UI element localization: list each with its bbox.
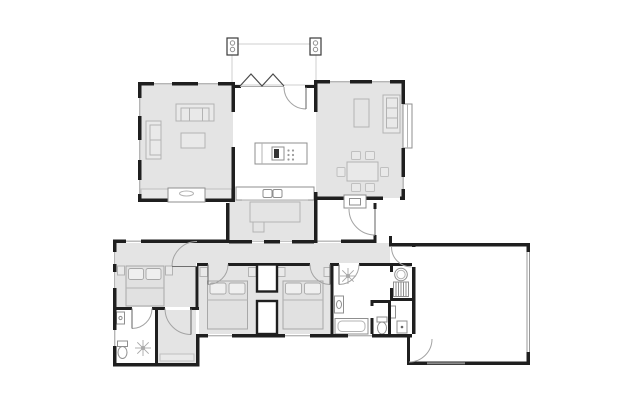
garage-door	[527, 252, 530, 352]
ensuite-door	[132, 309, 152, 329]
bedside-table	[166, 266, 173, 275]
chair	[352, 184, 361, 192]
deck-outline	[232, 44, 316, 85]
pillow	[129, 269, 144, 280]
island-cooktop	[255, 143, 307, 164]
toilet	[377, 317, 387, 334]
vanity	[335, 296, 344, 313]
floor-plan-canvas	[0, 0, 635, 405]
chair	[381, 168, 389, 177]
master-bedroom	[118, 266, 173, 306]
pillow	[229, 283, 245, 294]
appliance	[394, 282, 409, 297]
wardrobe	[257, 265, 277, 292]
window-seat	[141, 189, 168, 200]
chair	[366, 184, 375, 192]
pillow	[305, 283, 321, 294]
kitchen-door	[284, 87, 306, 109]
pillow	[146, 269, 161, 280]
deck	[227, 38, 321, 85]
chaise	[146, 121, 161, 159]
basin	[117, 312, 125, 324]
pergola-post	[310, 38, 321, 55]
walk-in-robe	[160, 354, 194, 361]
bedside-table	[278, 268, 286, 277]
ensuite	[117, 312, 152, 359]
bench	[236, 187, 314, 200]
wardrobe	[257, 301, 277, 334]
shower-rose-icon	[340, 268, 356, 284]
bathtub	[335, 319, 368, 335]
chair	[366, 152, 375, 160]
garage-door-threshold	[427, 362, 465, 364]
floor-plan-drawing	[0, 0, 635, 405]
dining-table	[347, 162, 378, 181]
shelf	[160, 354, 194, 361]
pergola-post	[227, 38, 238, 55]
kitchen	[236, 143, 314, 200]
toilet	[118, 341, 128, 359]
fireplace	[344, 195, 366, 208]
sofa	[383, 95, 400, 133]
wc	[377, 317, 387, 334]
bedside-table	[200, 268, 208, 277]
window-seat	[205, 189, 232, 200]
chair	[337, 168, 345, 177]
sofa	[176, 104, 214, 121]
front-door	[349, 209, 375, 235]
shower-rose-icon	[135, 340, 151, 356]
coffee-table	[181, 133, 205, 148]
chair	[352, 152, 361, 160]
pillow	[286, 283, 302, 294]
bedside-table	[118, 266, 125, 275]
fireplace	[168, 188, 205, 202]
hallway-floor	[196, 243, 390, 263]
pillow	[210, 283, 226, 294]
courtyard-floor	[229, 200, 314, 240]
hob	[274, 149, 279, 158]
bedside-table	[249, 268, 257, 277]
washer	[397, 321, 407, 333]
garage-internal-door	[409, 339, 432, 362]
